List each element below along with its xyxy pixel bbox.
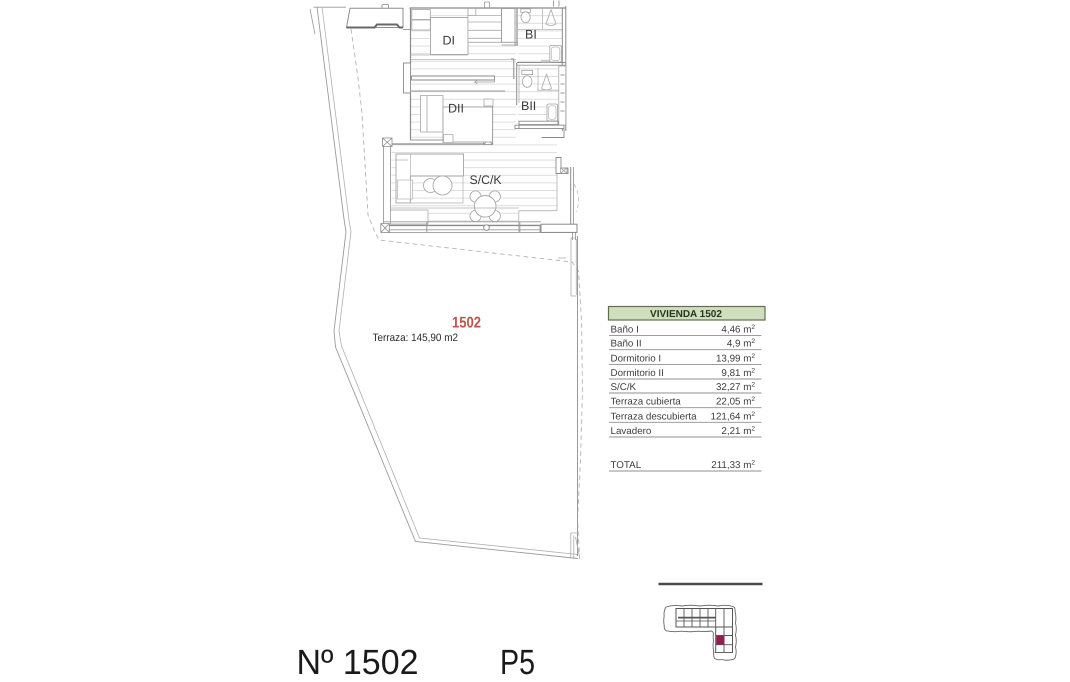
svg-text:13,99 m2: 13,99 m2 [716, 353, 755, 365]
svg-text:2,21 m2: 2,21 m2 [721, 426, 755, 438]
svg-text:P5: P5 [500, 643, 535, 682]
svg-text:BII: BII [521, 99, 536, 113]
svg-text:S/C/K: S/C/K [470, 173, 503, 187]
svg-text:DII: DII [448, 102, 464, 116]
svg-text:DI: DI [443, 34, 456, 48]
svg-text:Baño II: Baño II [611, 339, 642, 350]
svg-text:4,46 m2: 4,46 m2 [721, 324, 755, 336]
svg-text:Baño I: Baño I [611, 325, 639, 336]
svg-text:32,27 m2: 32,27 m2 [716, 382, 755, 394]
svg-text:Nº 1502: Nº 1502 [297, 643, 419, 682]
svg-text:211,33 m2: 211,33 m2 [711, 460, 755, 472]
svg-text:Dormitorio I: Dormitorio I [611, 353, 662, 364]
svg-text:Dormitorio II: Dormitorio II [611, 368, 664, 379]
svg-text:Terraza descubierta: Terraza descubierta [611, 411, 698, 422]
svg-text:Terraza: 145,90 m2: Terraza: 145,90 m2 [373, 332, 459, 344]
svg-text:TOTAL: TOTAL [611, 460, 642, 471]
svg-text:22,05 m2: 22,05 m2 [716, 396, 755, 408]
svg-text:VIVIENDA 1502: VIVIENDA 1502 [650, 309, 722, 320]
svg-text:BI: BI [525, 28, 537, 42]
svg-text:121,64 m2: 121,64 m2 [711, 411, 756, 423]
svg-text:Terraza cubierta: Terraza cubierta [611, 397, 682, 408]
svg-text:9,81 m2: 9,81 m2 [721, 368, 755, 380]
svg-text:S/C/K: S/C/K [611, 382, 637, 393]
svg-text:1502: 1502 [452, 315, 481, 332]
svg-text:4,9 m2: 4,9 m2 [727, 338, 756, 350]
svg-text:Lavadero: Lavadero [611, 426, 652, 437]
